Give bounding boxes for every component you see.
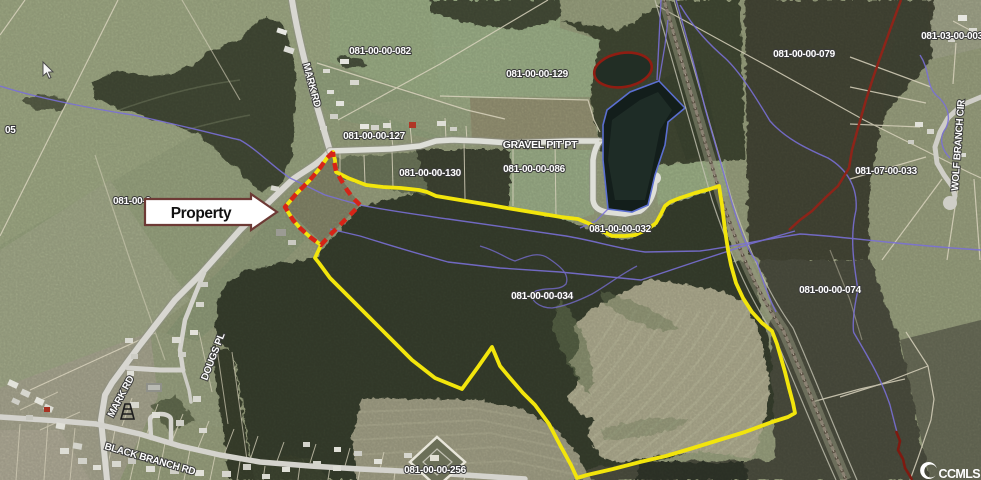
svg-text:GRAVEL PIT PT: GRAVEL PIT PT xyxy=(503,139,578,151)
svg-text:081-00-00-074: 081-00-00-074 xyxy=(799,285,861,296)
svg-text:05: 05 xyxy=(5,125,16,136)
svg-text:Property: Property xyxy=(171,205,232,222)
svg-text:081-00-00-256: 081-00-00-256 xyxy=(404,465,466,476)
svg-text:081-00-00-034: 081-00-00-034 xyxy=(511,291,573,302)
svg-text:081-00-00-130: 081-00-00-130 xyxy=(399,168,461,179)
svg-text:081-00-00-127: 081-00-00-127 xyxy=(343,131,405,142)
svg-text:081-07-00-033: 081-07-00-033 xyxy=(855,166,917,177)
svg-text:CCMLS: CCMLS xyxy=(939,467,981,480)
svg-text:081-00-00-129: 081-00-00-129 xyxy=(506,69,568,80)
svg-text:081-00-00-082: 081-00-00-082 xyxy=(349,46,411,57)
svg-text:081-03-00-003: 081-03-00-003 xyxy=(921,31,981,42)
svg-text:081-00-00-032: 081-00-00-032 xyxy=(589,224,651,235)
svg-text:081-00-00-086: 081-00-00-086 xyxy=(503,164,565,175)
svg-text:081-00-00-079: 081-00-00-079 xyxy=(773,49,835,60)
